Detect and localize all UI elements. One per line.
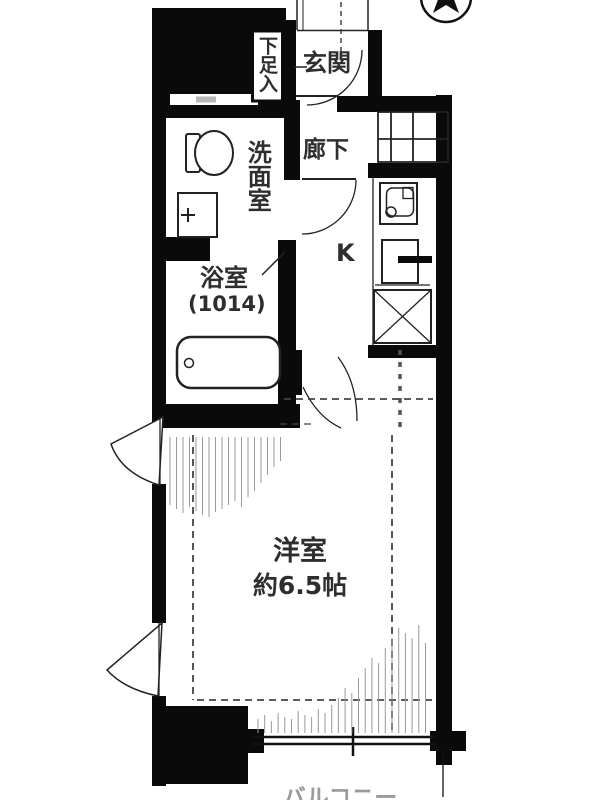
top-block-slot: [170, 94, 258, 105]
refrigerator-space-icon: [374, 285, 431, 343]
balcony-label: バルコニー: [240, 786, 440, 800]
toilet-icon: [186, 131, 233, 175]
shoe-cabinet-label: 下足入: [256, 36, 276, 93]
floor-plan: 下足入 玄関 洗面室 廊下 浴室 (1014) K 洋室 約6.5帖 バルコニー: [0, 0, 600, 800]
casement-window-lower: [107, 623, 162, 696]
washbasin-icon: [178, 193, 217, 237]
bathtub-icon: [177, 337, 280, 388]
wall-kitchen-bottom-bar: [368, 345, 452, 358]
wall-bottom-right-stub: [430, 731, 466, 751]
wall-bottom-left-block: [152, 706, 248, 784]
washroom-label: 洗面室: [244, 140, 269, 212]
wall-bathroom-bottom: [152, 404, 300, 428]
hatch-area-bottom-right: [258, 625, 426, 733]
main-room-label: 洋室: [230, 538, 370, 566]
room-door-arcs: [303, 357, 357, 428]
hallway-label: 廊下: [303, 138, 349, 162]
wall-room-door-stub: [290, 350, 302, 395]
bathroom-label: 浴室: [200, 266, 248, 291]
wall-left-upper: [152, 8, 166, 417]
wall-entry-bottom-bar: [337, 96, 452, 112]
washroom-door: [302, 179, 356, 234]
kitchen-counter-icon: [382, 240, 432, 283]
bathroom-size-label: (1014): [188, 293, 266, 315]
main-room-size-label: 約6.5帖: [215, 573, 385, 599]
floor-plan-drawing: [0, 0, 600, 800]
wall-window-left-cap: [248, 729, 264, 753]
casement-window-upper: [111, 417, 163, 485]
wall-entry-right: [368, 30, 382, 96]
wall-kitchen-top-bar: [368, 163, 452, 178]
wall-left-middle: [152, 484, 166, 623]
kitchen-label: K: [336, 241, 355, 266]
kitchen-sink-icon: [380, 183, 417, 224]
hatch-area-top-left: [170, 437, 281, 517]
entrance-label: 玄関: [303, 51, 351, 76]
wall-top-bar: [152, 8, 286, 32]
wall-washroom-right: [284, 116, 300, 180]
wall-right: [436, 95, 452, 765]
north-arrow-icon: [421, 0, 471, 22]
